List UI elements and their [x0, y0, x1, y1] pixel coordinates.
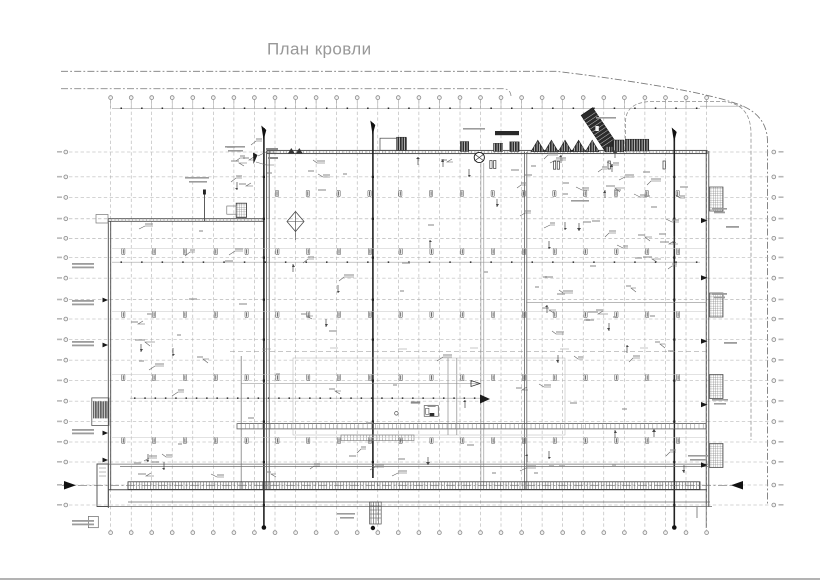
svg-text:План кровли: План кровли: [267, 40, 372, 59]
